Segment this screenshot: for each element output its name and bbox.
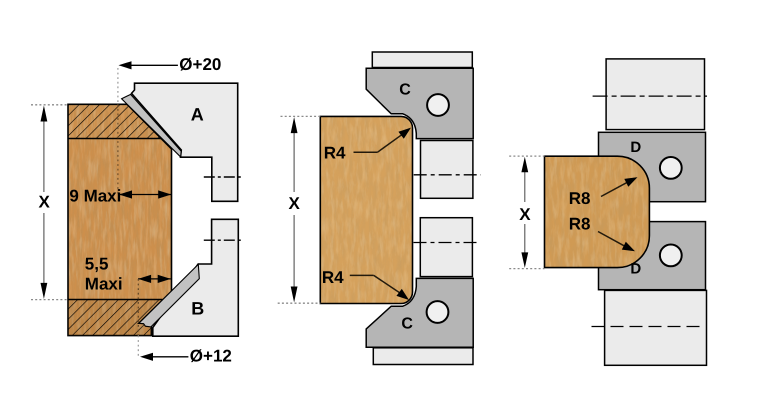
svg-text:C: C <box>401 316 413 333</box>
svg-text:A: A <box>191 104 204 124</box>
svg-text:X: X <box>39 193 51 212</box>
svg-text:X: X <box>289 194 301 213</box>
svg-text:D: D <box>630 260 641 277</box>
svg-text:B: B <box>191 298 204 318</box>
svg-text:9 Maxi: 9 Maxi <box>69 187 121 206</box>
svg-text:R8: R8 <box>569 189 591 208</box>
svg-text:Ø+20: Ø+20 <box>179 55 221 74</box>
svg-text:R8: R8 <box>569 215 591 234</box>
svg-text:X: X <box>519 205 531 224</box>
svg-text:D: D <box>630 139 641 156</box>
svg-text:Maxi: Maxi <box>85 274 123 293</box>
svg-text:R4: R4 <box>324 144 346 163</box>
svg-text:R4: R4 <box>322 268 344 287</box>
svg-text:C: C <box>399 82 411 99</box>
svg-text:5,5: 5,5 <box>85 255 109 274</box>
svg-text:Ø+12: Ø+12 <box>190 346 232 365</box>
